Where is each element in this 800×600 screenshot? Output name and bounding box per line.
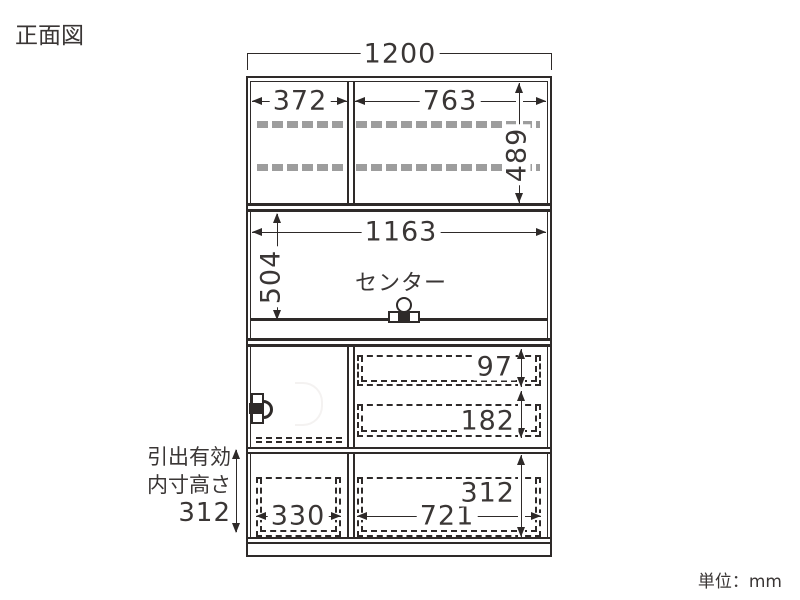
dim-182-arrow-up-icon bbox=[517, 391, 525, 401]
dim-763-arrow-left-icon bbox=[355, 97, 365, 105]
page-title: 正面図 bbox=[15, 16, 84, 50]
note-arrow-down-icon bbox=[232, 523, 240, 533]
dim-489: 489 bbox=[504, 125, 531, 186]
dim-1163-arrow-left-icon bbox=[252, 228, 262, 236]
dim-721-arrow-left-icon bbox=[357, 512, 367, 520]
base-divider bbox=[248, 537, 550, 544]
drawer-note: 引出有効 内寸高さ 312 bbox=[95, 443, 231, 527]
dim-182: 182 bbox=[457, 408, 518, 435]
shelf-bar bbox=[257, 164, 343, 171]
lock-icon-bolt bbox=[249, 403, 262, 414]
outlet-icon-plug bbox=[398, 311, 410, 323]
dim-312-arrow-up-icon bbox=[517, 455, 525, 465]
upper-middle-divider bbox=[248, 203, 550, 212]
dim-330: 330 bbox=[268, 503, 329, 530]
dim-97-arrow-down-icon bbox=[517, 377, 525, 387]
dim-1163: 1163 bbox=[362, 219, 441, 246]
dim-312: 312 bbox=[457, 480, 518, 507]
dim-372-arrow-left-icon bbox=[252, 97, 262, 105]
dim-489-arrow-down-icon bbox=[515, 193, 523, 203]
dim-312-arrow-down-icon bbox=[517, 527, 525, 537]
unit-label: 単位：mm bbox=[650, 567, 782, 592]
drawer-note-line1: 引出有効 bbox=[95, 443, 231, 471]
dim-504: 504 bbox=[258, 247, 285, 308]
dim-1163-arrow-right-icon bbox=[536, 228, 546, 236]
dim-372: 372 bbox=[270, 88, 331, 115]
dim-330-arrow-left-icon bbox=[256, 512, 266, 520]
dim-1200: 1200 bbox=[361, 41, 440, 68]
dim-312-line bbox=[518, 455, 525, 537]
dim-489-arrow-up-icon bbox=[515, 83, 523, 93]
dim-504-arrow-up-icon bbox=[273, 213, 281, 223]
dim-97-arrow-up-icon bbox=[517, 349, 525, 359]
door-hidden-edge bbox=[256, 441, 342, 443]
dim-721-arrow-right-icon bbox=[531, 512, 541, 520]
dim-763: 763 bbox=[420, 88, 481, 115]
note-dim-line bbox=[236, 450, 237, 532]
shelf-bar bbox=[257, 121, 343, 128]
middle-lower-divider bbox=[248, 338, 550, 347]
dim-504-arrow-down-icon bbox=[273, 310, 281, 320]
dim-1200-tick-right bbox=[551, 53, 552, 70]
lower-vertical-divider bbox=[347, 347, 355, 537]
dim-1200-tick-left bbox=[247, 53, 248, 70]
drawer-note-line3: 312 bbox=[95, 499, 231, 527]
center-label: センター bbox=[352, 273, 450, 295]
dim-372-arrow-right-icon bbox=[337, 97, 347, 105]
dim-97: 97 bbox=[474, 354, 516, 381]
dim-763-arrow-right-icon bbox=[536, 97, 546, 105]
dim-330-arrow-right-icon bbox=[331, 512, 341, 520]
dim-182-arrow-down-icon bbox=[517, 428, 525, 438]
door-hidden-edge bbox=[256, 437, 342, 439]
drawing-canvas: 正面図 単位：mm 引出有効 内寸高さ 312 1200 372 763 489… bbox=[0, 0, 800, 600]
lower-row-divider bbox=[248, 447, 550, 454]
upper-vertical-divider bbox=[347, 82, 355, 203]
drawer-note-line2: 内寸高さ bbox=[95, 471, 231, 499]
note-arrow-up-icon bbox=[232, 449, 240, 459]
